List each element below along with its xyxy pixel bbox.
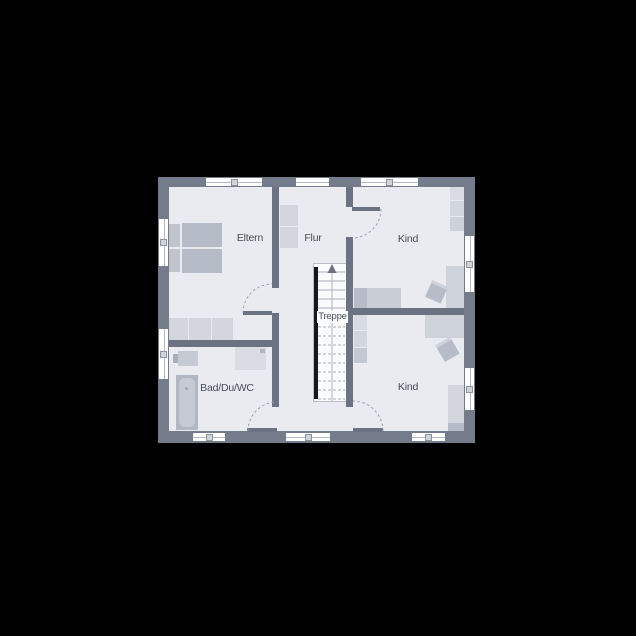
chair-kind-bottom xyxy=(435,337,459,362)
bed-kind-top xyxy=(354,288,401,310)
window-top-3 xyxy=(361,178,418,186)
staircase xyxy=(313,263,347,402)
window-handle xyxy=(466,261,473,268)
room-label-kind-top: Kind xyxy=(378,233,438,246)
room-label-kind-bottom: Kind xyxy=(378,381,438,394)
wall-eltern-bad xyxy=(169,340,279,347)
wardrobe-kind-top xyxy=(450,186,464,231)
window-bottom-1 xyxy=(193,433,225,441)
cabinet-segment xyxy=(189,318,210,340)
door-arc-kind-top xyxy=(352,209,381,238)
window-handle xyxy=(206,434,213,441)
window-handle xyxy=(466,386,473,393)
room-label-bad: Bad/Du/WC xyxy=(187,382,267,395)
stair-stringer xyxy=(314,267,318,399)
door-leaf-eltern xyxy=(243,311,272,315)
wall-bad-flur xyxy=(272,347,279,407)
cabinet-segment xyxy=(354,348,367,363)
desk-kind-top xyxy=(446,266,464,308)
window-handle xyxy=(305,434,312,441)
bed-mattress xyxy=(182,249,222,273)
screenshot-canvas: { "canvas": { "background": "#000000" },… xyxy=(0,0,636,636)
window-handle xyxy=(231,179,238,186)
bed-pillow xyxy=(168,249,180,272)
window-handle xyxy=(160,351,167,358)
window-bottom-2 xyxy=(286,433,330,441)
sink-tap xyxy=(173,354,178,363)
bed-mattress xyxy=(182,223,222,247)
door-leaf-bad xyxy=(247,428,277,432)
door-leaf-kind-bottom xyxy=(353,428,383,432)
wall-kind-kind xyxy=(346,308,464,315)
window-top-2 xyxy=(296,178,329,186)
cabinet-segment xyxy=(450,186,464,200)
wardrobe-kind-bottom xyxy=(354,315,367,363)
double-bed-eltern xyxy=(168,223,222,273)
cabinet-segment xyxy=(212,318,233,340)
bed-pillow xyxy=(448,423,464,431)
sideboard-eltern xyxy=(167,318,233,340)
window-right-1 xyxy=(465,236,474,292)
shower-head xyxy=(260,349,265,353)
cabinet-segment xyxy=(450,201,464,215)
room-label-eltern: Eltern xyxy=(220,232,280,245)
window-left-2 xyxy=(159,329,168,379)
room-label-flur: Flur xyxy=(283,232,343,245)
bed-kind-bottom xyxy=(448,385,464,431)
window-right-2 xyxy=(465,368,474,410)
bed-pillow xyxy=(168,224,180,247)
door-arc-eltern xyxy=(243,284,272,313)
cabinet-segment xyxy=(354,331,367,346)
cabinet-segment xyxy=(167,318,188,340)
window-handle xyxy=(160,239,167,246)
chair-kind-top xyxy=(425,280,448,303)
window-handle xyxy=(425,434,432,441)
window-left-1 xyxy=(159,219,168,266)
cabinet-segment xyxy=(354,315,367,330)
floor-plan: Eltern Flur Kind Kind Bad/Du/WC Treppe xyxy=(158,177,475,443)
wall-exterior-left xyxy=(158,177,169,443)
desk-kind-bottom xyxy=(425,315,464,338)
sink xyxy=(178,351,198,366)
door-leaf-kind-top xyxy=(352,207,380,211)
cabinet-segment xyxy=(280,205,298,226)
door-arc-kind-bottom xyxy=(353,401,383,431)
cabinet-segment xyxy=(450,217,464,231)
wall-flur-kind-upper xyxy=(346,187,353,207)
window-handle xyxy=(386,179,393,186)
bed-pillow xyxy=(354,288,367,310)
window-top-1 xyxy=(206,178,262,186)
room-label-treppe: Treppe xyxy=(317,311,348,323)
window-bottom-3 xyxy=(412,433,445,441)
